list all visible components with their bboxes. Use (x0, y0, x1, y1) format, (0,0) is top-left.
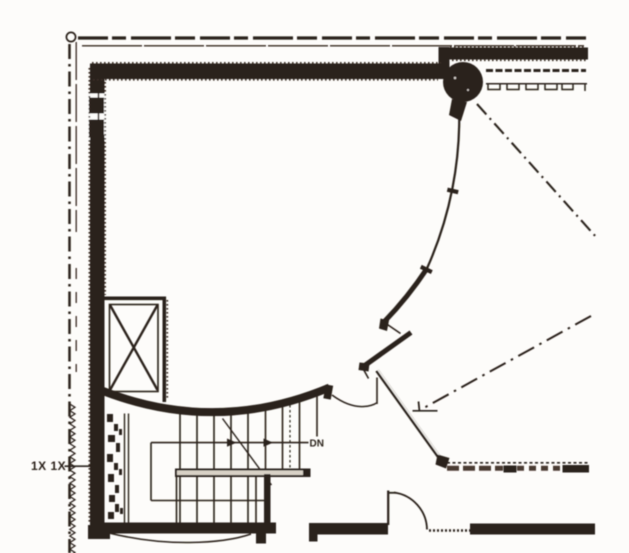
svg-text:DN: DN (310, 439, 324, 450)
svg-text:1X 1X: 1X 1X (31, 459, 66, 473)
